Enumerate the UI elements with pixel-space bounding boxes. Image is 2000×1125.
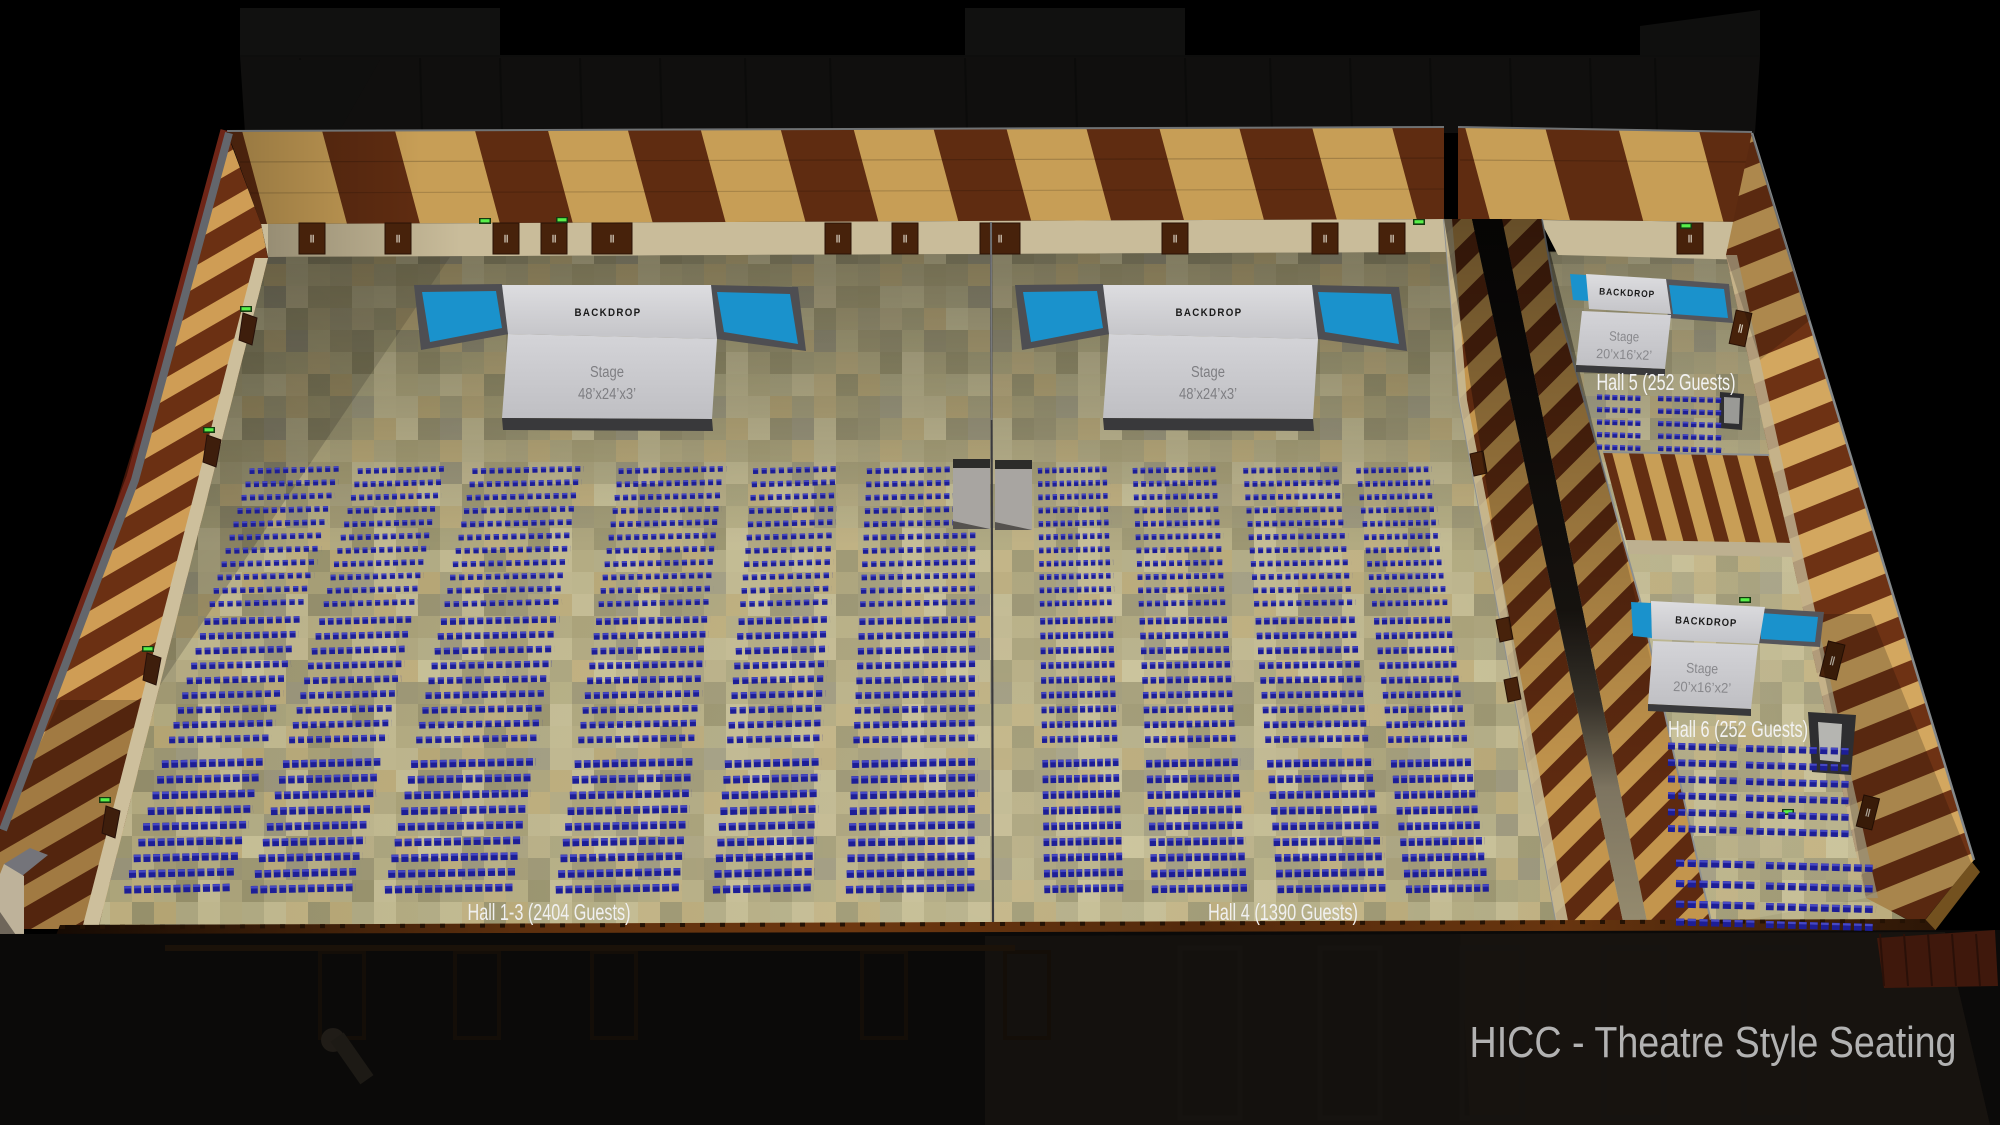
- svg-text:Hall 4 (1390 Guests): Hall 4 (1390 Guests): [1208, 899, 1358, 925]
- svg-text:20’x16’x2’: 20’x16’x2’: [1673, 678, 1732, 696]
- svg-text:Stage: Stage: [1686, 659, 1719, 676]
- svg-text:48’x24’x3’: 48’x24’x3’: [1179, 386, 1237, 403]
- svg-text:Hall 1-3 (2404 Guests): Hall 1-3 (2404 Guests): [468, 899, 631, 925]
- svg-text:BACKDROP: BACKDROP: [1176, 307, 1243, 319]
- svg-text:BACKDROP: BACKDROP: [575, 307, 642, 319]
- svg-text:HICC - Theatre Style Seating: HICC - Theatre Style Seating: [1470, 1018, 1957, 1067]
- svg-text:Hall 6 (252 Guests): Hall 6 (252 Guests): [1668, 716, 1808, 742]
- svg-text:Hall 5 (252 Guests): Hall 5 (252 Guests): [1597, 369, 1736, 395]
- svg-text:48’x24’x3’: 48’x24’x3’: [578, 386, 636, 403]
- svg-text:Stage: Stage: [1191, 364, 1225, 381]
- svg-text:Stage: Stage: [1609, 328, 1640, 344]
- svg-text:Stage: Stage: [590, 364, 624, 381]
- svg-text:20’x16’x2’: 20’x16’x2’: [1596, 346, 1652, 363]
